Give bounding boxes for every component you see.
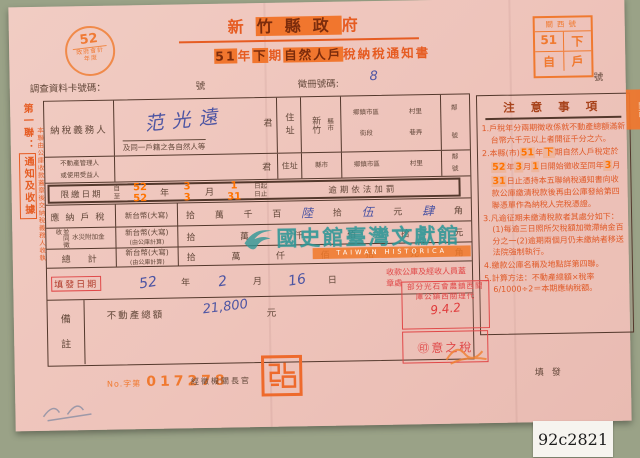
taxpayer-name-handwritten: 范光遠: [143, 101, 226, 136]
fiscal-year-stamp: 52 政府會計 年度: [62, 23, 118, 79]
deadline-month-from: 3: [183, 181, 190, 192]
manager-label2: 或使用受益人: [60, 172, 99, 180]
unit-qian: 千: [243, 207, 252, 220]
honorific: 君: [263, 116, 272, 129]
manager-label1: 不動產管理人: [60, 160, 99, 168]
survey-card-unit: 號: [196, 78, 206, 92]
deadline-month-unit: 月: [205, 185, 214, 198]
deadline-suffix-to: 日止: [254, 190, 267, 198]
issue-check-label: 填發: [535, 365, 569, 379]
amount-jiao-handwritten: 肆: [422, 202, 434, 219]
taxpayer-row: 納稅義務人 范光遠 君 及同一戶籍之各自然人等 住址 新竹 縣市 鄉鎮市區 街段…: [44, 94, 470, 157]
scanned-tax-document: { "catalog_label": "92c2821", "stamp_52"…: [0, 0, 640, 458]
survey-card-label: 調查資料卡號碼：: [30, 80, 106, 95]
serial-prefix: No.字第: [107, 379, 141, 389]
deadline-label: 限繳日期: [50, 187, 114, 200]
addr-unit-lin: 鄰: [451, 105, 458, 113]
total-currency-note: (由公庫計算): [130, 259, 165, 267]
manager-addr-township: 鄉鎮市區: [342, 161, 392, 169]
surtax-label-a: 並同徵收: [53, 228, 68, 248]
tax-code-box: 關西號 51 下 自 戶: [533, 15, 594, 78]
tax-code-type1: 自: [535, 52, 564, 71]
tax-due-currency: 新台幣(大寫): [116, 203, 178, 226]
tax-notice-paper: 52 政府會計 年度 新竹縣政府 51年下期自然人戶稅納稅通知書 關西號 51 …: [8, 0, 631, 431]
unit-jiao: 角: [454, 203, 463, 216]
issue-date-label: 填發日期: [51, 276, 101, 292]
deadline-month-to: 3: [184, 192, 191, 203]
address-city-unit: 縣市: [325, 118, 333, 131]
manager-city-unit: 縣市: [302, 153, 342, 179]
farmers-association-stamp: 部分光石會農鎮西關 庫公鎮西關理代 9.4.2: [401, 280, 490, 330]
manager-address-label: 住址: [278, 153, 302, 178]
deadline-year-from: 52: [133, 182, 147, 193]
issue-year-unit: 年: [181, 275, 190, 288]
register-number-unit: 號: [594, 69, 604, 83]
copy-strip-part1: 第一聯：: [21, 103, 33, 151]
addr-unit-hao: 號: [451, 132, 458, 140]
addr-unit-lane: 巷弄: [409, 129, 422, 137]
catalog-number: 92c2821: [538, 430, 608, 449]
unit-yuan: 元: [393, 204, 402, 217]
issue-month-unit: 月: [253, 274, 262, 287]
issue-day-handwritten: 16: [287, 271, 307, 290]
unit-wan: 萬: [215, 207, 224, 220]
township-stamp: 關西: [626, 89, 640, 130]
taxpayer-note: 及同一戶籍之各自然人等: [123, 139, 206, 153]
addr-unit-village: 村里: [409, 109, 422, 117]
catalog-number-label: 92c2821: [533, 421, 613, 457]
notes-list: 1.戶稅年分兩期徵收係就不動產總額滿新台幣六千元以上者開征千分之六。2.本縣(市…: [477, 121, 632, 296]
notes-title: 注 意 事 項: [485, 98, 621, 120]
deadline-day-to: 31: [227, 191, 241, 202]
unit-bai: 百: [272, 206, 281, 219]
deadline-year-to: 52: [133, 193, 147, 204]
deadline-year-unit: 年: [160, 186, 169, 199]
addr-unit-street: 街段: [360, 130, 373, 138]
unit-shi: 拾: [186, 208, 195, 221]
note-item: 5.計算方法：不動產總額×稅率6/1000÷2＝本期應納稅額。: [484, 270, 628, 296]
tax-code-type2: 戶: [564, 51, 592, 70]
deadline-penalty: 逾期依法加罰: [267, 181, 459, 196]
amount-tens-handwritten: 陸: [301, 204, 313, 221]
official-square-seal: [260, 354, 303, 397]
orange-scribble: [442, 339, 493, 370]
issue-day-unit: 日: [328, 273, 337, 286]
document-subtitle: 51年下期自然人戶稅納稅通知書: [157, 41, 487, 66]
unit-shi2: 拾: [333, 205, 342, 218]
manager-addr-hao: 號: [452, 166, 459, 174]
note-item: 2.本縣(市)51年下期自然人戶稅定於52年3月1日開始徵收至同年3月31日止憑…: [482, 145, 627, 212]
issue-month-handwritten: 2: [217, 273, 228, 290]
tax-code-term: 下: [563, 31, 591, 50]
total-label: 總 計: [47, 249, 117, 268]
surtax-currency: 新台幣(大寫): [125, 228, 169, 238]
amount-yuan-handwritten: 伍: [361, 203, 373, 220]
address-city-value: 新竹: [309, 115, 322, 133]
surtax-currency-note: (由公庫計算): [130, 239, 165, 247]
pencil-scribble: [37, 394, 98, 425]
manager-addr-lin: 鄰: [452, 153, 459, 161]
total-currency: 新台幣(大寫): [125, 248, 169, 258]
addr-unit-township: 鄉鎮市區: [353, 109, 379, 117]
notice-instructions-box: 注 意 事 項 1.戶稅年分兩期徵收係就不動產總額滿新台幣六千元以上者開征千分之…: [476, 93, 634, 336]
remark-label-1: 備: [61, 314, 71, 325]
note-item: 3.凡逾征期未繳清稅款者其處分如下：(1)每逾三日照所欠稅額加徵滯納金百分之一(…: [483, 210, 628, 259]
manager-honorific: 君: [262, 160, 271, 173]
property-total-label: 不動產總額: [107, 307, 165, 322]
collecting-agency-head-label: 經徵機關長官: [191, 375, 251, 387]
manager-addr-village: 村里: [392, 160, 442, 168]
document-title: 新竹縣政府: [178, 10, 418, 43]
surtax-label-b: 水災附加金: [68, 234, 108, 242]
property-total-unit: 元: [267, 305, 277, 319]
property-total-value: 21,800: [202, 297, 249, 317]
register-number-label: 徵冊號碼:: [298, 76, 339, 91]
address-label: 住址: [277, 97, 302, 152]
note-item: 1.戶稅年分兩期徵收係就不動產總額滿新台幣六千元以上者開征千分之六。: [481, 121, 625, 147]
register-number-value: 8: [369, 69, 378, 84]
deadline-day-from: 1: [230, 180, 237, 191]
taxpayer-label: 納稅義務人: [44, 101, 115, 157]
tax-code-district: 關西號: [535, 17, 591, 32]
tax-due-label: 應納戶稅: [46, 205, 116, 228]
issue-year-handwritten: 52: [138, 273, 158, 292]
remark-label-2: 註: [61, 339, 71, 350]
tax-code-year: 51: [535, 32, 564, 51]
